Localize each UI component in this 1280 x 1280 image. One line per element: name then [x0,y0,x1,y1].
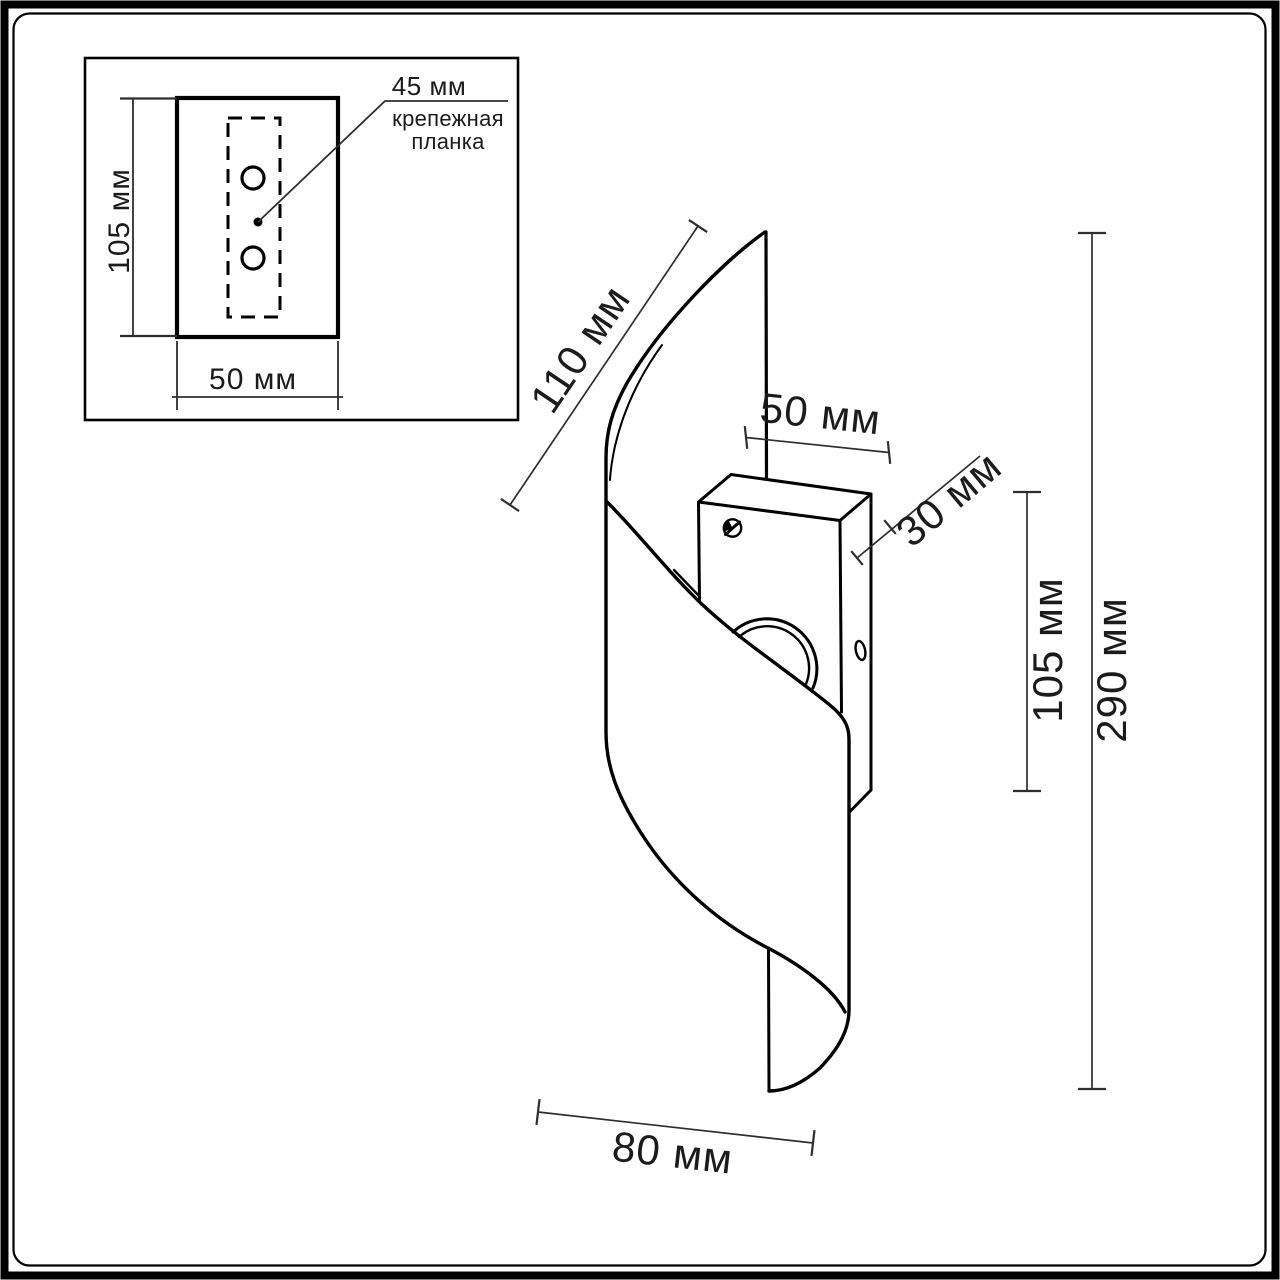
box-front-right-edge [840,521,842,713]
shade-tail-left-edge [769,948,770,1090]
diffuser-inner-arc [739,626,809,684]
inset-bar-width-label: 45 мм [392,71,466,101]
overall-height-label: 290 мм [1088,597,1135,743]
box-top-face [699,475,872,521]
shade-inner-fold-edge [674,570,700,597]
inset-width-label: 50 мм [209,363,297,396]
diffuser-outer-arc [733,619,817,688]
lamp-diffuser [733,619,817,688]
shade-edge-tick-bottom [501,499,519,511]
lamp-drawing [606,232,871,1091]
drawing-canvas: 105 мм 50 мм 45 мм крепежная планка 110 … [0,0,1280,1280]
shade-edge-dim-line [510,226,698,505]
box-depth-label: 30 мм [887,442,1010,556]
shade-outer-silhouette [606,232,845,1012]
box-width-label: 50 мм [758,384,883,443]
technical-drawing: 105 мм 50 мм 45 мм крепежная планка 110 … [0,0,1280,1280]
shade-tip-back-edge [766,232,767,478]
bottom-width-tick-left [537,1099,540,1125]
mounting-box [699,475,872,813]
box-side-bottom-edge [849,790,871,813]
shade-thickness-line-top [610,345,662,480]
shade-edge-tick-top [689,220,707,232]
inset-height-label: 105 мм [103,168,136,274]
spiral-shade [606,232,849,1091]
shade-front-edge [606,501,849,1091]
inset-bar-name-line1: крепежная [392,106,504,131]
box-width-tick-left [745,426,747,449]
bottom-width-tick-right [812,1130,815,1156]
shade-edge-label: 110 мм [521,277,640,421]
box-width-tick-right [888,441,890,464]
box-height-label: 105 мм [1024,577,1071,723]
box-side-hole [854,640,867,661]
inset-bar-name-line2: планка [411,129,485,154]
box-front-left-edge [699,502,700,601]
box-depth-tick-outer [851,551,863,565]
